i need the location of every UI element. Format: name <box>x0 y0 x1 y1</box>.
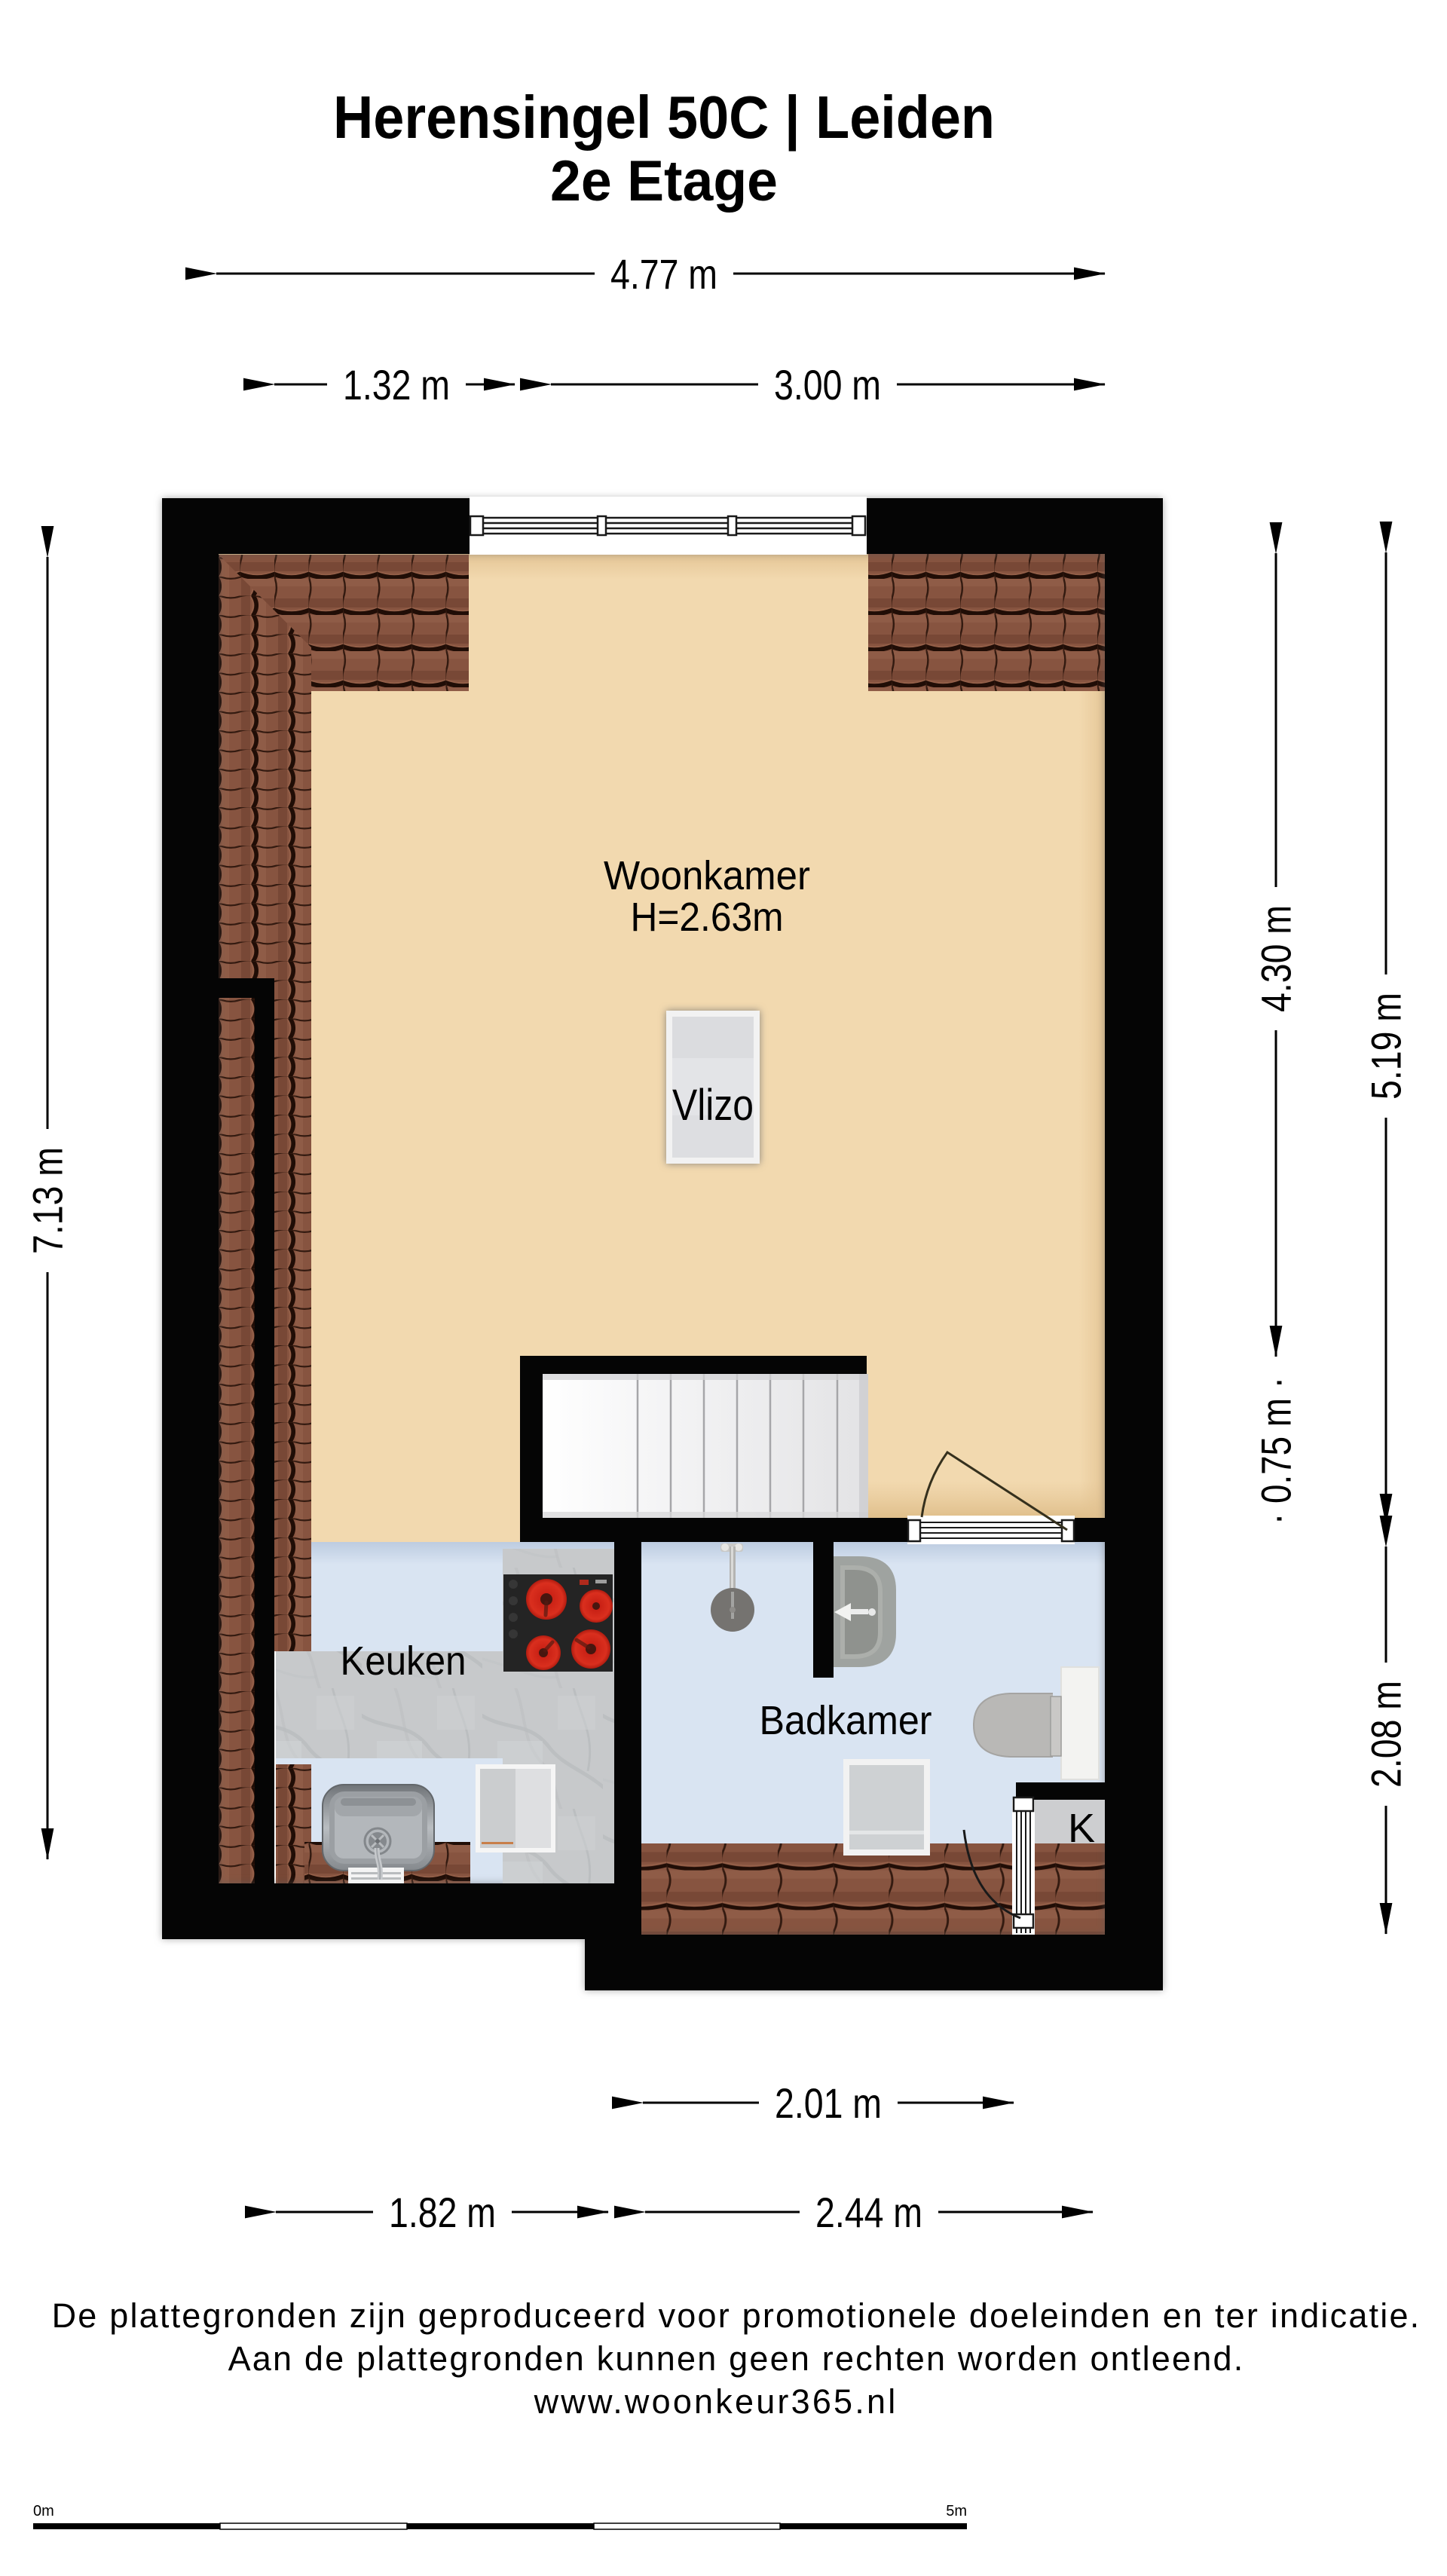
svg-text:5.19 m: 5.19 m <box>1363 993 1410 1100</box>
svg-text:0m: 0m <box>33 2503 54 2519</box>
svg-text:5m: 5m <box>946 2503 967 2519</box>
svg-text:2.44 m: 2.44 m <box>815 2189 922 2236</box>
svg-text:3.00 m: 3.00 m <box>774 361 881 408</box>
svg-text:2.08 m: 2.08 m <box>1363 1681 1410 1788</box>
svg-text:Herensingel 50C | Leiden: Herensingel 50C | Leiden <box>333 84 995 151</box>
svg-text:De plattegronden zijn geproduc: De plattegronden zijn geproduceerd voor … <box>52 2296 1421 2335</box>
svg-text:K: K <box>1068 1806 1095 1851</box>
svg-text:1.82 m: 1.82 m <box>389 2189 496 2236</box>
svg-text:4.77 m: 4.77 m <box>610 250 717 298</box>
svg-text:Vlizo: Vlizo <box>672 1081 754 1130</box>
svg-text:4.30 m: 4.30 m <box>1253 905 1300 1012</box>
svg-text:Woonkamer: Woonkamer <box>604 853 810 898</box>
svg-text:· 0.75 m ·: · 0.75 m · <box>1253 1377 1300 1525</box>
svg-text:7.13 m: 7.13 m <box>24 1147 72 1254</box>
svg-text:www.woonkeur365.nl: www.woonkeur365.nl <box>534 2382 898 2421</box>
svg-text:2.01 m: 2.01 m <box>775 2079 882 2127</box>
svg-text:H=2.63m: H=2.63m <box>631 895 784 940</box>
svg-text:Keuken: Keuken <box>341 1638 467 1684</box>
svg-text:Badkamer: Badkamer <box>760 1698 932 1743</box>
svg-text:1.32 m: 1.32 m <box>343 361 450 408</box>
svg-text:2e Etage: 2e Etage <box>550 149 778 213</box>
svg-text:Aan de plattegronden kunnen ge: Aan de plattegronden kunnen geen rechten… <box>228 2339 1245 2378</box>
